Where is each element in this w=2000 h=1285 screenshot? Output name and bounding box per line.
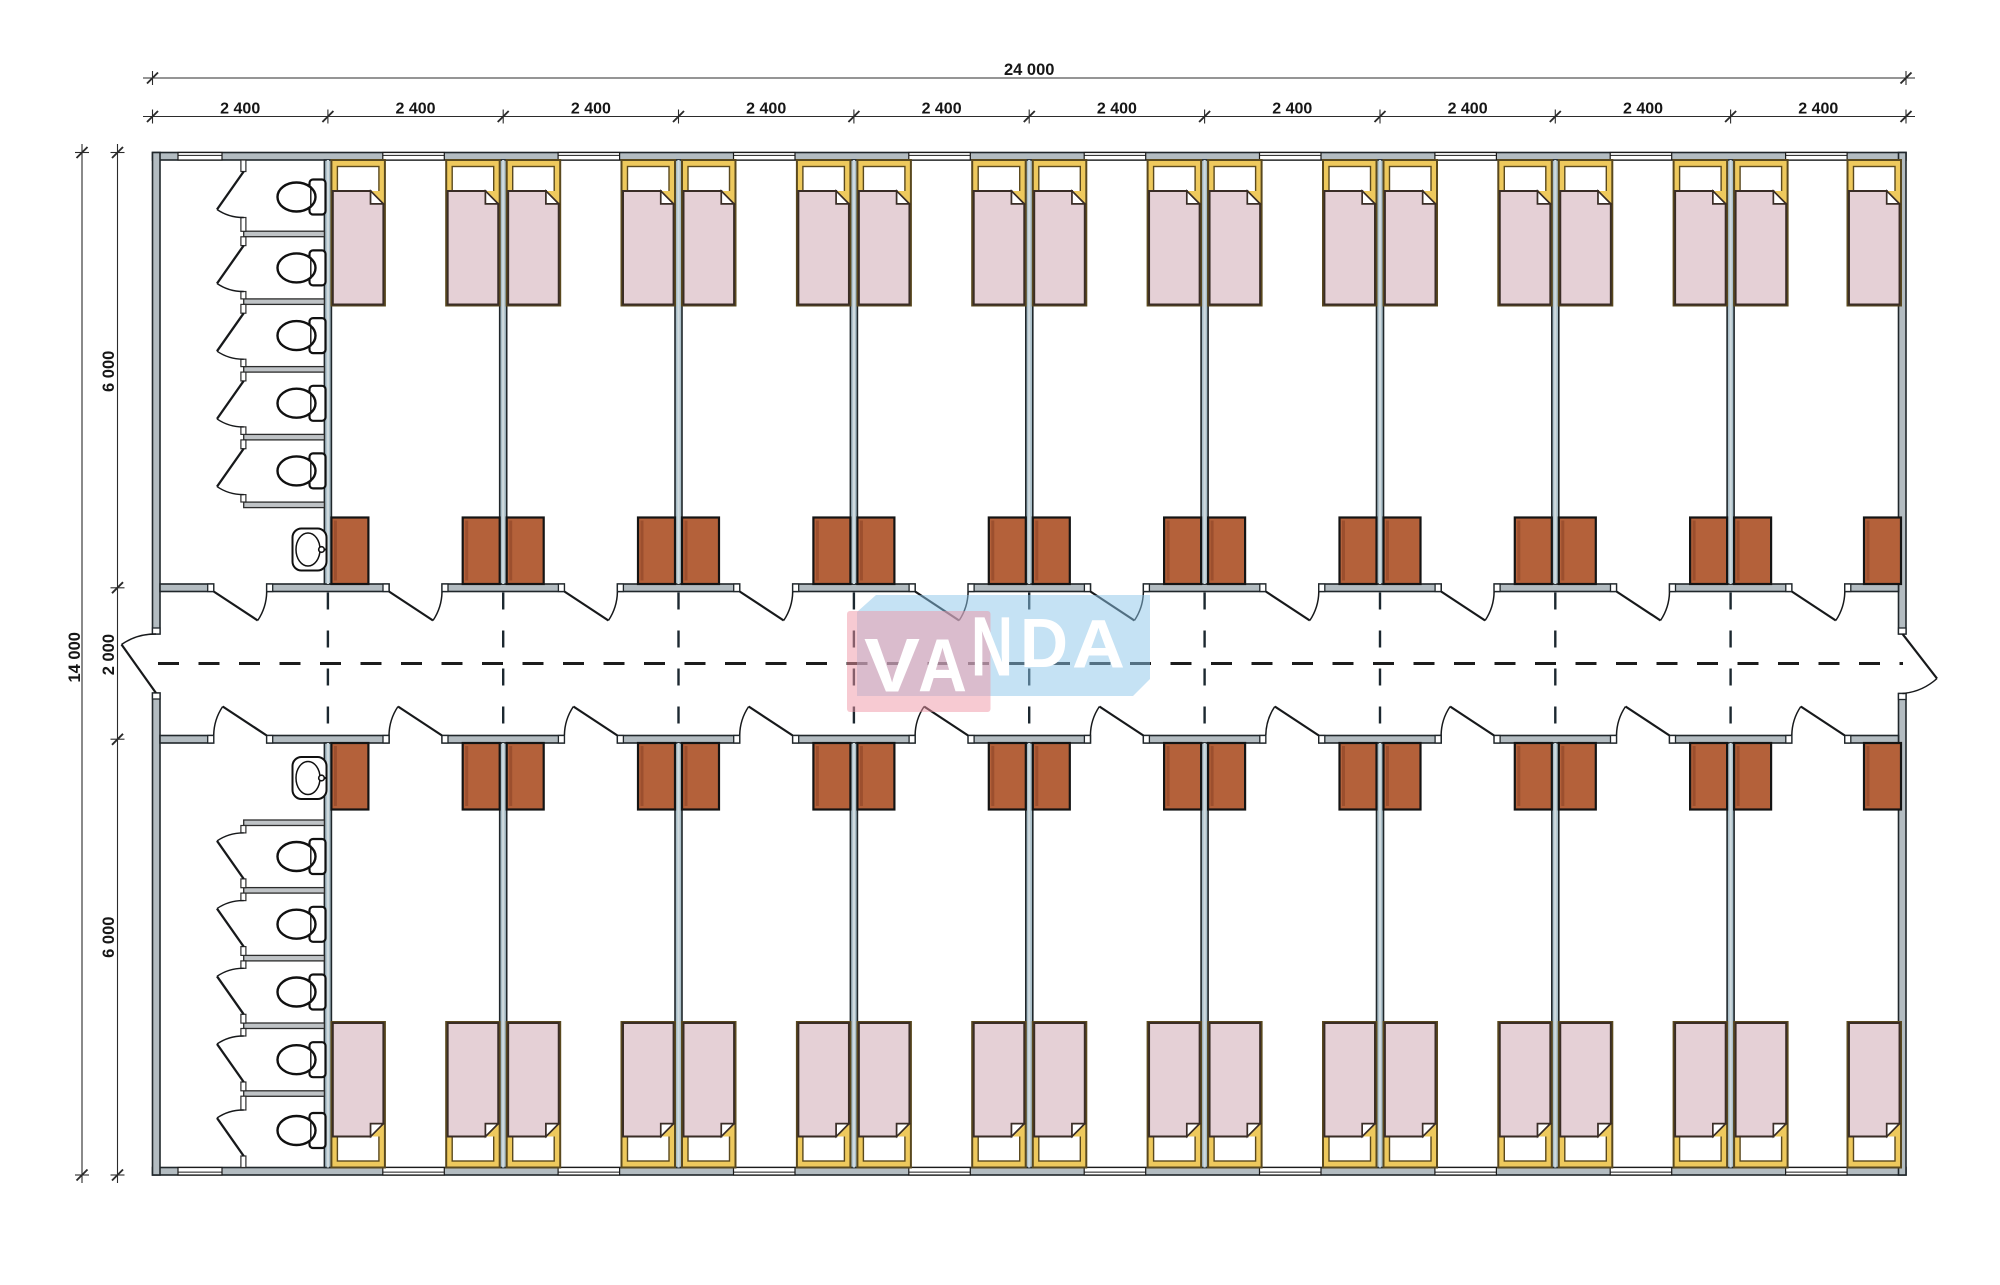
svg-text:14 000: 14 000 (66, 632, 84, 682)
svg-text:2 400: 2 400 (1448, 101, 1488, 118)
svg-text:2 400: 2 400 (746, 101, 786, 118)
svg-text:N: N (971, 600, 1013, 694)
svg-text:2 400: 2 400 (1097, 101, 1137, 118)
svg-text:2 400: 2 400 (1623, 101, 1663, 118)
svg-text:2 400: 2 400 (1798, 101, 1838, 118)
svg-text:V: V (864, 624, 920, 709)
svg-text:6 000: 6 000 (100, 917, 118, 958)
svg-text:D: D (1020, 604, 1068, 682)
svg-text:A: A (918, 623, 967, 707)
svg-text:6 000: 6 000 (100, 351, 118, 392)
svg-text:2 400: 2 400 (571, 101, 611, 118)
svg-text:2 400: 2 400 (1272, 101, 1312, 118)
svg-text:2 400: 2 400 (220, 101, 260, 118)
svg-text:2 400: 2 400 (395, 101, 435, 118)
svg-text:A: A (1072, 606, 1125, 683)
svg-text:2 000: 2 000 (100, 634, 118, 675)
svg-text:2 400: 2 400 (922, 101, 962, 118)
svg-text:24 000: 24 000 (1004, 61, 1054, 79)
